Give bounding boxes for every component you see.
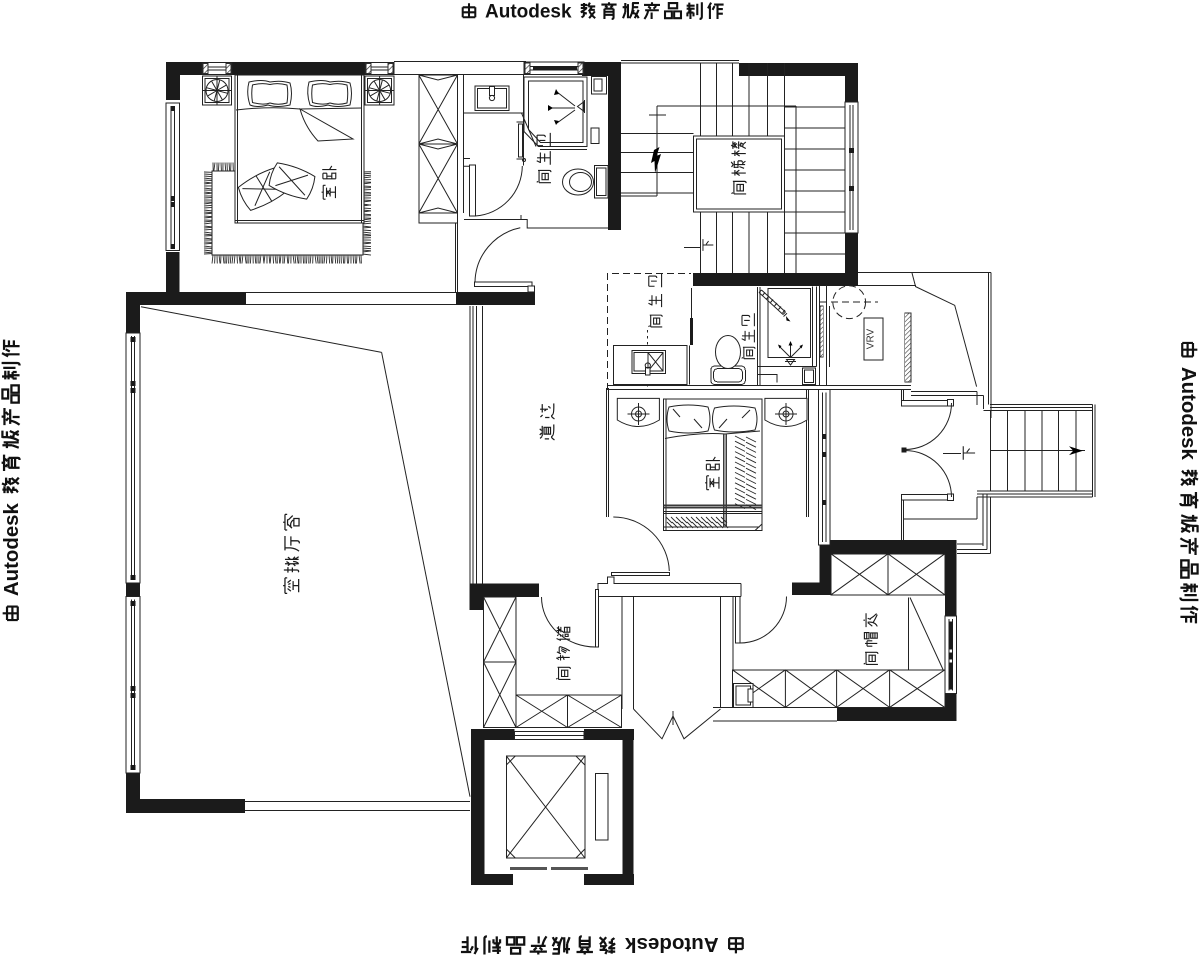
svg-text:Autodesk: Autodesk bbox=[1, 502, 23, 596]
svg-text:Autodesk: Autodesk bbox=[1177, 367, 1199, 461]
svg-text:Autodesk: Autodesk bbox=[625, 933, 719, 956]
svg-text:VRV: VRV bbox=[866, 328, 877, 349]
svg-text:Autodesk: Autodesk bbox=[485, 2, 572, 23]
